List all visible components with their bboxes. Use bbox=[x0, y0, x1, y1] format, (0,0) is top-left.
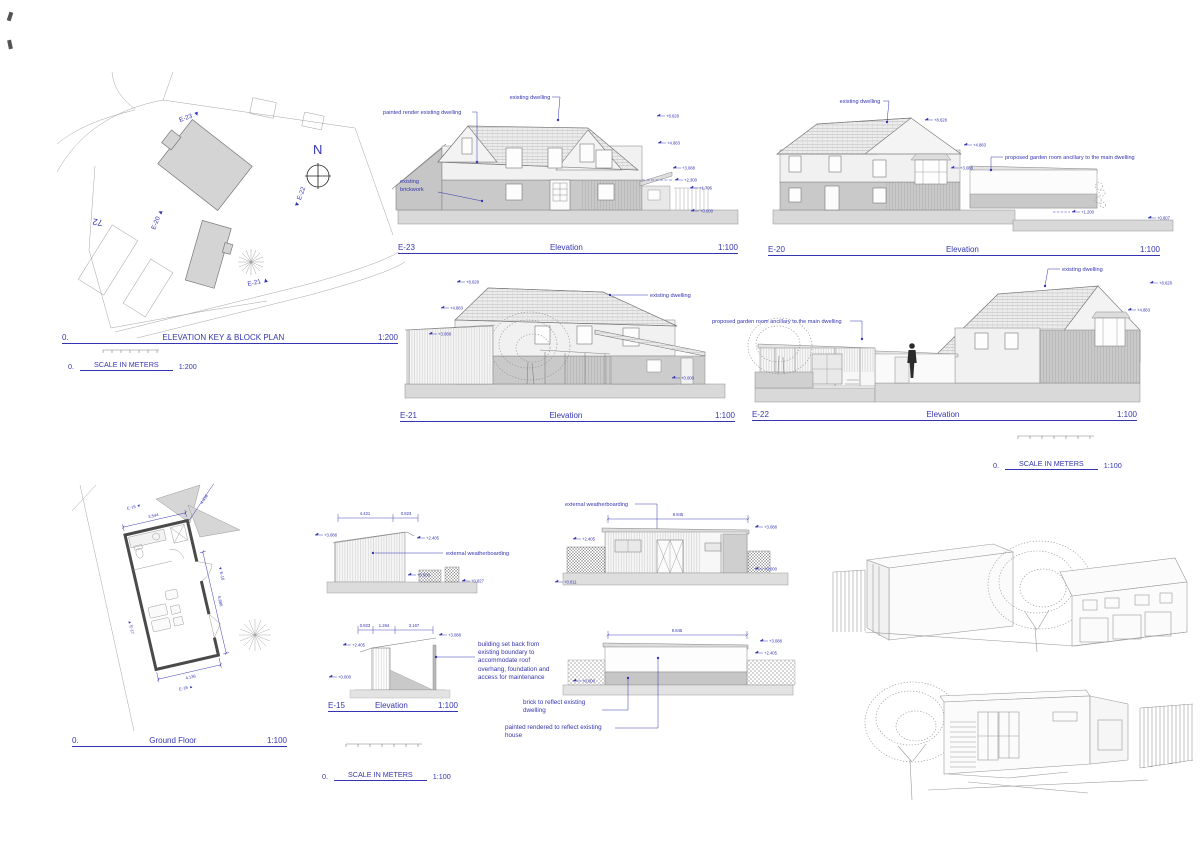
level-annotation: +1.706 bbox=[690, 186, 713, 191]
porch-roof bbox=[640, 172, 672, 186]
elevation-title: Elevation bbox=[549, 411, 582, 420]
ground-base bbox=[773, 210, 1015, 224]
svg-text:+0.000: +0.000 bbox=[582, 679, 596, 684]
label-existing-dwelling: existing dwelling bbox=[840, 99, 881, 105]
existing-house-corner bbox=[188, 505, 240, 537]
garden-room-footprint bbox=[185, 220, 237, 290]
mid-wall bbox=[955, 328, 1040, 383]
scale-ratio: 1:100 bbox=[433, 772, 451, 781]
svg-text:+2.300: +2.300 bbox=[684, 178, 698, 183]
svg-text:+8.628: +8.628 bbox=[934, 118, 948, 123]
elevation-scale: 1:100 bbox=[718, 243, 738, 252]
brick-note: brick to reflect existing dwelling bbox=[523, 699, 603, 715]
elevation-id: E-23 bbox=[398, 243, 415, 252]
level-annotation: +8.628 bbox=[925, 118, 948, 123]
svg-text:+3.088: +3.088 bbox=[324, 533, 338, 538]
elevation-scale: 1:100 bbox=[438, 701, 458, 710]
svg-text:+3.088: +3.088 bbox=[764, 525, 778, 530]
garden-room-sketch bbox=[940, 690, 1128, 778]
svg-text:+0.811: +0.811 bbox=[564, 580, 577, 585]
scale-label: SCALE IN METERS bbox=[1005, 459, 1098, 470]
existing-house-footprint bbox=[150, 113, 252, 210]
e22-title-row: E-22 Elevation 1:100 bbox=[752, 410, 1137, 421]
svg-text:6.886: 6.886 bbox=[217, 596, 224, 608]
scale-bar bbox=[1015, 432, 1097, 444]
ground-floor-plan: 3.544 4.136 6.886 4.436 E-15 ▼ ▼ E-16 ▲ … bbox=[70, 483, 325, 735]
ground-base bbox=[405, 384, 725, 398]
roof bbox=[455, 288, 677, 326]
ground-base-left bbox=[755, 388, 875, 402]
upper-scale-row: 0. SCALE IN METERS 1:100 bbox=[993, 459, 1122, 470]
elevation-title: Elevation bbox=[946, 245, 979, 254]
scale-no: 0. bbox=[322, 772, 328, 781]
block-plan-drawing: E-23 ▼ ▼ E-22 E-20 ▲ E-21 ▲ N 72 bbox=[55, 70, 405, 340]
svg-text:+2.405: +2.405 bbox=[582, 537, 596, 542]
label-weatherboarding: external weatherboarding bbox=[565, 502, 628, 508]
front-door bbox=[550, 180, 570, 210]
marker-e16: ▼ E-16 bbox=[218, 566, 226, 582]
house-number: 72 bbox=[92, 217, 103, 228]
registration-mark bbox=[7, 12, 14, 22]
marker-e17: ▲ E-17 bbox=[127, 620, 135, 636]
label-existing-dwelling: existing dwelling bbox=[650, 293, 691, 299]
scale-label: SCALE IN METERS bbox=[334, 770, 427, 781]
registration-mark bbox=[7, 40, 13, 50]
e21-elevation-drawing: existing dwelling +8.628 +4.883 +3.088 +… bbox=[395, 266, 740, 416]
elevation-id: E-20 bbox=[768, 245, 785, 254]
svg-text:+0.000: +0.000 bbox=[417, 573, 431, 578]
title-no: 0. bbox=[62, 333, 69, 342]
level-annotation: +8.628 bbox=[457, 280, 480, 285]
bay-roof bbox=[911, 154, 951, 160]
svg-text:brickwork: brickwork bbox=[400, 187, 424, 193]
render-note: painted rendered to reflect existing hou… bbox=[505, 724, 620, 740]
svg-text:+1.706: +1.706 bbox=[699, 186, 713, 191]
svg-text:0.823: 0.823 bbox=[401, 511, 412, 516]
house-sketch bbox=[1060, 558, 1187, 646]
title-scale: 1:100 bbox=[267, 736, 287, 745]
elevation-id: E-21 bbox=[400, 411, 417, 420]
e20-elevation-drawing: existing dwelling proposed garden room a… bbox=[765, 90, 1180, 242]
scale-ratio: 1:200 bbox=[179, 362, 197, 371]
level-annotation: +4.883 bbox=[1128, 308, 1151, 313]
level-annotation: +8.628 bbox=[657, 114, 680, 119]
elevation-title: Elevation bbox=[375, 701, 408, 710]
label-garden-room: proposed garden room ancillary to the ma… bbox=[1005, 155, 1135, 161]
fence bbox=[674, 188, 710, 210]
plot-boundaries bbox=[89, 72, 393, 328]
svg-text:4.136: 4.136 bbox=[185, 673, 197, 680]
marker-e22: ▼ E-22 bbox=[293, 186, 307, 209]
svg-text:+4.883: +4.883 bbox=[973, 143, 987, 148]
ground-base-right bbox=[875, 383, 1140, 402]
svg-text:+0.827: +0.827 bbox=[471, 579, 485, 584]
scale-bar bbox=[343, 740, 425, 752]
bay-window bbox=[1095, 318, 1125, 346]
svg-text:4.436: 4.436 bbox=[199, 493, 209, 505]
e15-title-row: E-15 Elevation 1:100 bbox=[328, 701, 458, 712]
svg-text:3.544: 3.544 bbox=[148, 512, 160, 519]
perspective-sketch-1 bbox=[825, 500, 1195, 665]
door bbox=[825, 186, 839, 210]
section-drawing: 0.823 1.264 3.167 +3.088 +2.405 +0.000 bbox=[329, 623, 475, 698]
scale-bar bbox=[100, 346, 162, 356]
tree-symbol bbox=[239, 619, 271, 651]
drawing-sheet: E-23 ▼ ▼ E-22 E-20 ▲ E-21 ▲ N 72 0. ELEV… bbox=[0, 0, 1200, 848]
tree-symbol bbox=[238, 249, 264, 275]
svg-text:+3.088: +3.088 bbox=[960, 166, 974, 171]
svg-text:9.845: 9.845 bbox=[672, 628, 683, 633]
svg-text:+3.088: +3.088 bbox=[438, 332, 452, 337]
label-existing-dwelling: existing dwelling bbox=[1062, 267, 1103, 273]
scale-ratio: 1:100 bbox=[1104, 461, 1122, 470]
fence-sketch bbox=[1140, 704, 1193, 768]
svg-text:9.845: 9.845 bbox=[673, 512, 684, 517]
label-garden-room: proposed garden room ancillary to the ma… bbox=[712, 319, 842, 325]
svg-text:+3.088: +3.088 bbox=[448, 633, 462, 638]
bay-roof bbox=[1092, 312, 1130, 318]
svg-text:+4.883: +4.883 bbox=[1137, 308, 1151, 313]
label-painted-render: painted render existing dwelling bbox=[383, 110, 461, 116]
scale-no: 0. bbox=[68, 362, 74, 371]
marker-e20: E-20 ▲ bbox=[150, 208, 165, 231]
lower-scale-row: 0. SCALE IN METERS 1:100 bbox=[322, 770, 451, 781]
level-annotation: +1.200 bbox=[1072, 210, 1095, 215]
label-existing-brickwork: existing bbox=[400, 179, 419, 185]
north-label: N bbox=[313, 142, 322, 157]
title-no: 0. bbox=[72, 736, 79, 745]
elevation-scale: 1:100 bbox=[1117, 410, 1137, 419]
block-plan-scale-row: 0. SCALE IN METERS 1:200 bbox=[68, 360, 197, 371]
elevation-title: Elevation bbox=[926, 410, 959, 419]
e21-title-row: E-21 Elevation 1:100 bbox=[400, 411, 735, 422]
svg-text:4.421: 4.421 bbox=[360, 511, 371, 516]
scale-label: SCALE IN METERS bbox=[80, 360, 173, 371]
svg-text:+2.405: +2.405 bbox=[764, 651, 778, 656]
garden-room-plinth bbox=[970, 194, 1097, 208]
fence-sketch bbox=[833, 570, 865, 632]
svg-text:+0.000: +0.000 bbox=[681, 376, 695, 381]
svg-text:+8.628: +8.628 bbox=[1159, 281, 1173, 286]
elevation-scale: 1:100 bbox=[715, 411, 735, 420]
marker-e21: E-21 ▲ bbox=[247, 277, 270, 288]
svg-text:+0.000: +0.000 bbox=[700, 209, 714, 214]
compass-icon bbox=[305, 163, 331, 189]
ground-base bbox=[398, 210, 738, 224]
label-existing-dwelling: existing dwelling bbox=[510, 95, 551, 101]
svg-text:+1.200: +1.200 bbox=[1081, 210, 1095, 215]
elevation-title: Elevation bbox=[550, 243, 583, 252]
title-text: Ground Floor bbox=[149, 736, 196, 745]
block-plan-title-row: 0. ELEVATION KEY & BLOCK PLAN 1:200 bbox=[62, 333, 398, 344]
svg-text:+8.628: +8.628 bbox=[666, 114, 680, 119]
side-elevation: 4.421 0.823 +3.088 +2.405 +0.000 +0.827 … bbox=[315, 511, 509, 593]
level-annotation: +4.883 bbox=[658, 141, 681, 146]
svg-text:+2.405: +2.405 bbox=[426, 536, 440, 541]
elevation-id: E-22 bbox=[752, 410, 769, 419]
svg-text:+8.628: +8.628 bbox=[466, 280, 480, 285]
elevation-scale: 1:100 bbox=[1140, 245, 1160, 254]
perspective-sketch-2 bbox=[828, 660, 1198, 812]
marker-e15: E-15 ▼ bbox=[126, 503, 141, 511]
svg-text:+2.405: +2.405 bbox=[352, 643, 366, 648]
svg-text:3.167: 3.167 bbox=[409, 623, 420, 628]
elevation-id: E-15 bbox=[328, 701, 345, 710]
svg-text:1.264: 1.264 bbox=[379, 623, 390, 628]
level-annotation: +4.883 bbox=[441, 306, 464, 311]
garden-room-sketch bbox=[867, 544, 1013, 640]
level-annotation: +4.883 bbox=[964, 143, 987, 148]
garden-room bbox=[755, 344, 875, 388]
label-weatherboarding: external weatherboarding bbox=[446, 551, 509, 557]
neighbour-buildings bbox=[78, 225, 172, 317]
svg-text:+3.088: +3.088 bbox=[682, 166, 696, 171]
svg-text:+0.807: +0.807 bbox=[1157, 216, 1171, 221]
scale-no: 0. bbox=[993, 461, 999, 470]
ground-floor-title-row: 0. Ground Floor 1:100 bbox=[72, 736, 287, 747]
e23-title-row: E-23 Elevation 1:100 bbox=[398, 243, 738, 254]
svg-text:+4.883: +4.883 bbox=[667, 141, 681, 146]
title-text: ELEVATION KEY & BLOCK PLAN bbox=[162, 333, 284, 342]
e20-title-row: E-20 Elevation 1:100 bbox=[768, 245, 1160, 256]
svg-text:+3.088: +3.088 bbox=[769, 639, 783, 644]
svg-text:+4.883: +4.883 bbox=[450, 306, 464, 311]
level-annotation: +2.300 bbox=[675, 178, 698, 183]
svg-text:+0.000: +0.000 bbox=[338, 675, 352, 680]
svg-text:+0.000: +0.000 bbox=[764, 567, 778, 572]
level-annotation: +3.088 bbox=[673, 166, 696, 171]
e22-elevation-drawing: existing dwelling proposed garden room a… bbox=[700, 258, 1180, 410]
e23-elevation-drawing: existing dwelling painted render existin… bbox=[380, 86, 740, 238]
level-annotation: +8.628 bbox=[1150, 281, 1173, 286]
roads bbox=[57, 72, 405, 338]
front-elevation: external weatherboarding 9.845 +2.405 +3… bbox=[555, 502, 788, 585]
ground-base-lower bbox=[1013, 220, 1173, 231]
marker-e23: E-23 ▼ bbox=[178, 110, 201, 124]
svg-text:0.823: 0.823 bbox=[360, 623, 371, 628]
marker-e18: E-18 ▲ bbox=[179, 684, 194, 692]
